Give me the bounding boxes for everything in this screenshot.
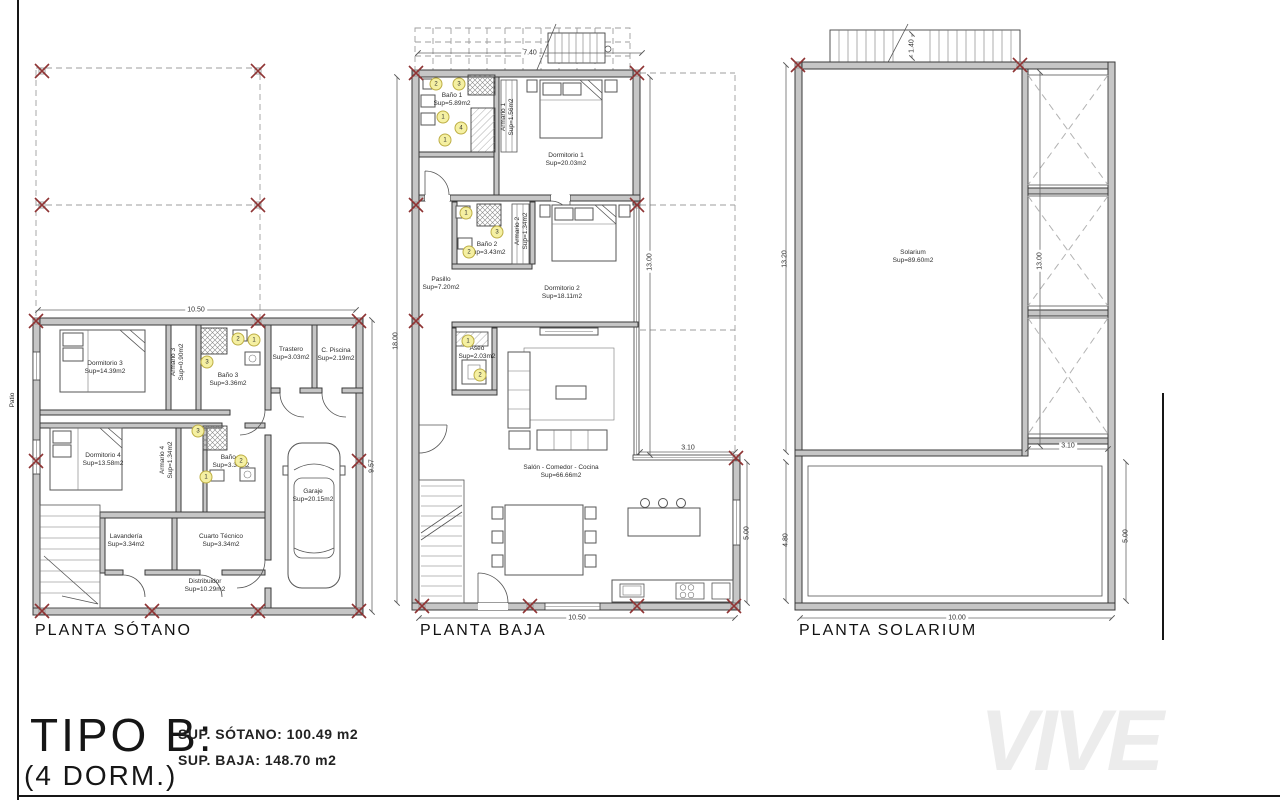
room-label-bano-1: Baño 1Sup=5.89m2 — [433, 92, 470, 108]
fixture-tag: 2 — [235, 455, 248, 468]
sheet-left-border — [17, 0, 19, 800]
dim-baja-notch: 3.10 — [679, 445, 697, 452]
sofa — [508, 352, 607, 450]
room-label-c-piscina: C. PiscinaSup=2.19m2 — [317, 347, 354, 363]
dim-solarium-left: 13.20 — [782, 250, 789, 268]
fixture-tag: 3 — [491, 226, 504, 239]
room-label-distribuidor: DistribuidorSup=10.29m2 — [185, 578, 226, 594]
bed — [527, 80, 617, 138]
dorms-label: (4 DORM.) — [24, 760, 177, 792]
fixture-tag: 1 — [248, 334, 261, 347]
dim-solarium-right-upper: 13.00 — [1037, 250, 1044, 272]
stairs — [419, 480, 464, 603]
watermark: VIVE — [980, 692, 1160, 791]
fixture-tag: 2 — [430, 78, 443, 91]
fixture-tag: 1 — [200, 471, 213, 484]
room-label-solarium: SolariumSup=89.60m2 — [893, 249, 934, 265]
fixture-tag: 1 — [460, 207, 473, 220]
tv — [540, 328, 598, 335]
dining-table — [492, 505, 596, 575]
shower — [468, 75, 495, 95]
dim-solarium-left-lower: 4.80 — [783, 533, 790, 547]
car — [283, 443, 345, 588]
plan-title-solarium: PLANTA SOLARIUM — [799, 622, 977, 640]
room-label-armario-4: Armario 4Sup=1.34m2 — [159, 441, 175, 478]
terrace-parapet — [808, 466, 1102, 596]
dim-solarium-notch: 3.10 — [1059, 443, 1077, 450]
room-label-garaje: GarajeSup=20.15m2 — [293, 488, 334, 504]
fixture-tag: 1 — [437, 111, 450, 124]
dim-baja-left: 18.00 — [393, 332, 400, 350]
fixture-tag: 3 — [192, 425, 205, 438]
shower — [477, 204, 501, 226]
sheet-bottom-border — [17, 795, 1280, 797]
area-baja-label: SUP. BAJA: 148.70 m2 — [178, 752, 336, 768]
patio-dashed-outline — [36, 68, 260, 318]
fixture-tag: 2 — [232, 333, 245, 346]
fixture-tag: 3 — [453, 78, 466, 91]
dim-sotano-height: 9.57 — [369, 459, 376, 473]
room-label-salon-comedor-cocina: Salón - Comedor - CocinaSup=66.66m2 — [523, 464, 598, 480]
shower — [203, 426, 227, 450]
dim-baja-bottom: 10.50 — [566, 615, 588, 622]
bidet — [421, 113, 435, 125]
stairs — [40, 505, 100, 608]
dim-baja-top: 7.40 — [521, 50, 539, 57]
room-label-aseo: AseoSup=2.03m2 — [458, 345, 495, 361]
shower — [201, 328, 227, 354]
fixture-tag: 2 — [474, 369, 487, 382]
dim-sotano-width: 10.50 — [185, 307, 207, 314]
fixture-tag: 1 — [439, 134, 452, 147]
fixture-tag: 3 — [201, 356, 214, 369]
toilet — [245, 352, 260, 365]
room-label-armario-2: Armario 2Sup=1.34m2 — [514, 212, 530, 249]
room-label-pasillo: PasilloSup=7.20m2 — [422, 276, 459, 292]
dim-solarium-stair: 1.40 — [909, 37, 916, 55]
terrace-dashed — [640, 73, 735, 455]
room-label-dormitorio-3: Dormitorio 3Sup=14.39m2 — [85, 360, 126, 376]
coffee-table — [556, 386, 586, 399]
room-label-trastero: TrasteroSup=3.03m2 — [272, 346, 309, 362]
kitchen-island — [628, 499, 700, 537]
plan-title-baja: PLANTA BAJA — [420, 622, 547, 640]
room-label-bano-3: Baño 3Sup=3.36m2 — [209, 372, 246, 388]
room-label-cuarto-tecnico: Cuarto TécnicoSup=3.34m2 — [199, 533, 243, 549]
kitchen-counter — [612, 580, 733, 602]
exterior-stairs — [536, 24, 611, 72]
floorplan-linework — [0, 0, 1280, 800]
room-label-dormitorio-2: Dormitorio 2Sup=18.11m2 — [542, 285, 582, 301]
rug — [524, 348, 614, 420]
bed — [540, 205, 630, 261]
fixture-tag: 1 — [462, 335, 475, 348]
room-label-dormitorio-4: Dormitorio 4Sup=13.58m2 — [83, 452, 124, 468]
dim-baja-right-upper: 13.00 — [647, 251, 654, 273]
sheet-right-mark — [1162, 393, 1164, 640]
room-label-patio: Patio — [9, 393, 17, 408]
room-label-lavanderia: LavanderíaSup=3.34m2 — [107, 533, 144, 549]
room-label-dormitorio-1: Dormitorio 1Sup=20.03m2 — [546, 152, 587, 168]
bathtub — [471, 108, 495, 152]
room-label-armario-1: Armario 1Sup=1.56m2 — [500, 98, 516, 135]
dim-solarium-right-lower: 5.00 — [1123, 529, 1130, 543]
fixture-tag: 2 — [463, 246, 476, 259]
exterior-stairs — [830, 24, 1020, 68]
floorplan-sheet: Dormitorio 3Sup=14.39m2 Armario 3Sup=0.9… — [0, 0, 1280, 800]
plan-title-sotano: PLANTA SÓTANO — [35, 622, 192, 640]
dim-baja-right-lower: 5.00 — [744, 526, 751, 540]
fixture-tag: 4 — [455, 122, 468, 135]
dim-solarium-bottom: 10.00 — [946, 615, 968, 622]
room-label-armario-3: Armario 3Sup=0.90m2 — [170, 343, 186, 380]
area-sotano-label: SUP. SÓTANO: 100.49 m2 — [178, 726, 358, 742]
baja-linework — [397, 24, 747, 618]
solarium-linework — [786, 24, 1126, 618]
